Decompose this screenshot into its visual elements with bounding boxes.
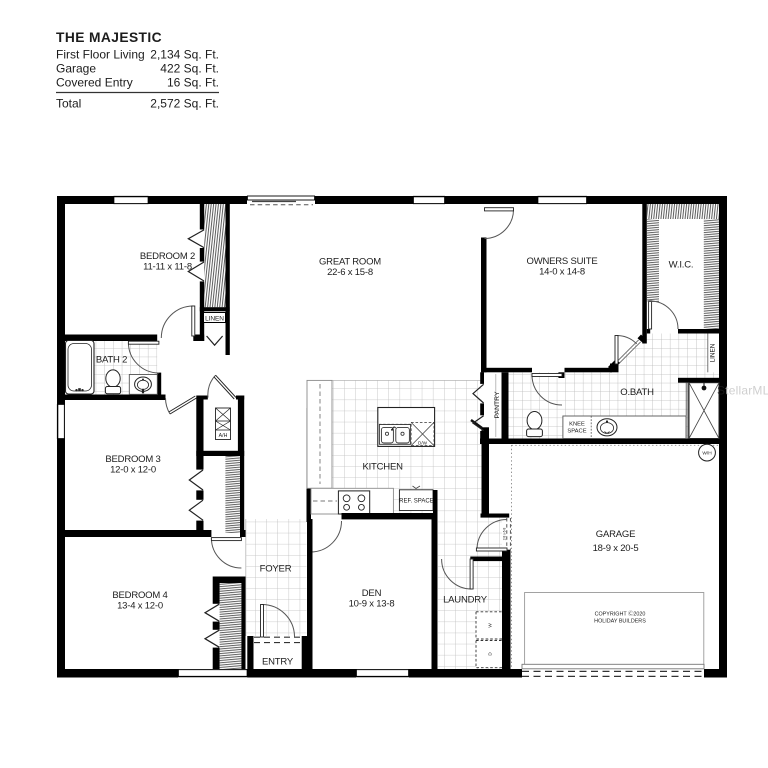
svg-text:BEDROOM 4: BEDROOM 4 [112, 590, 167, 601]
svg-text:BATH 2: BATH 2 [96, 355, 127, 366]
svg-text:BEDROOM 2: BEDROOM 2 [140, 251, 195, 262]
svg-text:SPACE: SPACE [567, 429, 586, 435]
svg-text:14-0 x 14-8: 14-0 x 14-8 [539, 267, 585, 278]
svg-text:2,572 Sq. Ft.: 2,572 Sq. Ft. [150, 97, 219, 111]
svg-text:2,134 Sq. Ft.: 2,134 Sq. Ft. [150, 48, 219, 62]
svg-text:W: W [488, 623, 493, 628]
svg-text:16 Sq. Ft.: 16 Sq. Ft. [167, 76, 219, 90]
svg-text:W/H: W/H [702, 451, 712, 457]
svg-text:LINEN: LINEN [710, 343, 717, 362]
svg-text:Covered Entry: Covered Entry [56, 76, 133, 90]
svg-text:10-9 x 13-8: 10-9 x 13-8 [349, 599, 395, 610]
svg-text:KITCHEN: KITCHEN [362, 462, 403, 473]
svg-text:GARAGE: GARAGE [596, 529, 635, 540]
svg-text:COPYRIGHT Ⓒ2020: COPYRIGHT Ⓒ2020 [595, 609, 646, 617]
svg-text:13-4 x 12-0: 13-4 x 12-0 [117, 601, 163, 612]
svg-text:D/W: D/W [418, 441, 428, 446]
svg-text:KNEE: KNEE [569, 422, 585, 428]
svg-text:FOYER: FOYER [260, 564, 292, 575]
svg-text:OWNERS SUITE: OWNERS SUITE [527, 256, 598, 267]
svg-text:First Floor Living: First Floor Living [56, 48, 145, 62]
svg-text:W.I.C.: W.I.C. [669, 260, 694, 271]
svg-text:GREAT ROOM: GREAT ROOM [319, 257, 381, 268]
svg-text:ENTRY: ENTRY [262, 657, 294, 668]
svg-text:18-9 x 20-5: 18-9 x 20-5 [593, 543, 639, 554]
svg-text:LAUNDRY: LAUNDRY [443, 595, 488, 606]
svg-text:Total: Total [56, 97, 81, 111]
svg-text:PANTRY: PANTRY [494, 391, 501, 418]
svg-text:12-0 x 12-0: 12-0 x 12-0 [110, 465, 156, 476]
svg-text:BEDROOM 3: BEDROOM 3 [105, 454, 160, 465]
svg-text:2-8 x 6-8: 2-8 x 6-8 [502, 527, 506, 540]
svg-text:StellarML: StellarML [717, 384, 768, 398]
svg-text:THE MAJESTIC: THE MAJESTIC [56, 30, 162, 45]
svg-text:22-6 x 15-8: 22-6 x 15-8 [327, 267, 373, 278]
svg-text:422 Sq. Ft.: 422 Sq. Ft. [160, 62, 219, 76]
svg-text:A/H: A/H [219, 433, 228, 439]
svg-text:Garage: Garage [56, 62, 96, 76]
svg-text:O.BATH: O.BATH [620, 387, 654, 398]
svg-text:LINEN: LINEN [205, 315, 224, 322]
svg-text:REF. SPACE: REF. SPACE [399, 499, 434, 505]
svg-text:HOLIDAY BUILDERS: HOLIDAY BUILDERS [594, 619, 646, 625]
svg-text:DEN: DEN [362, 588, 382, 599]
svg-text:11-11 x 11-8: 11-11 x 11-8 [143, 262, 192, 273]
